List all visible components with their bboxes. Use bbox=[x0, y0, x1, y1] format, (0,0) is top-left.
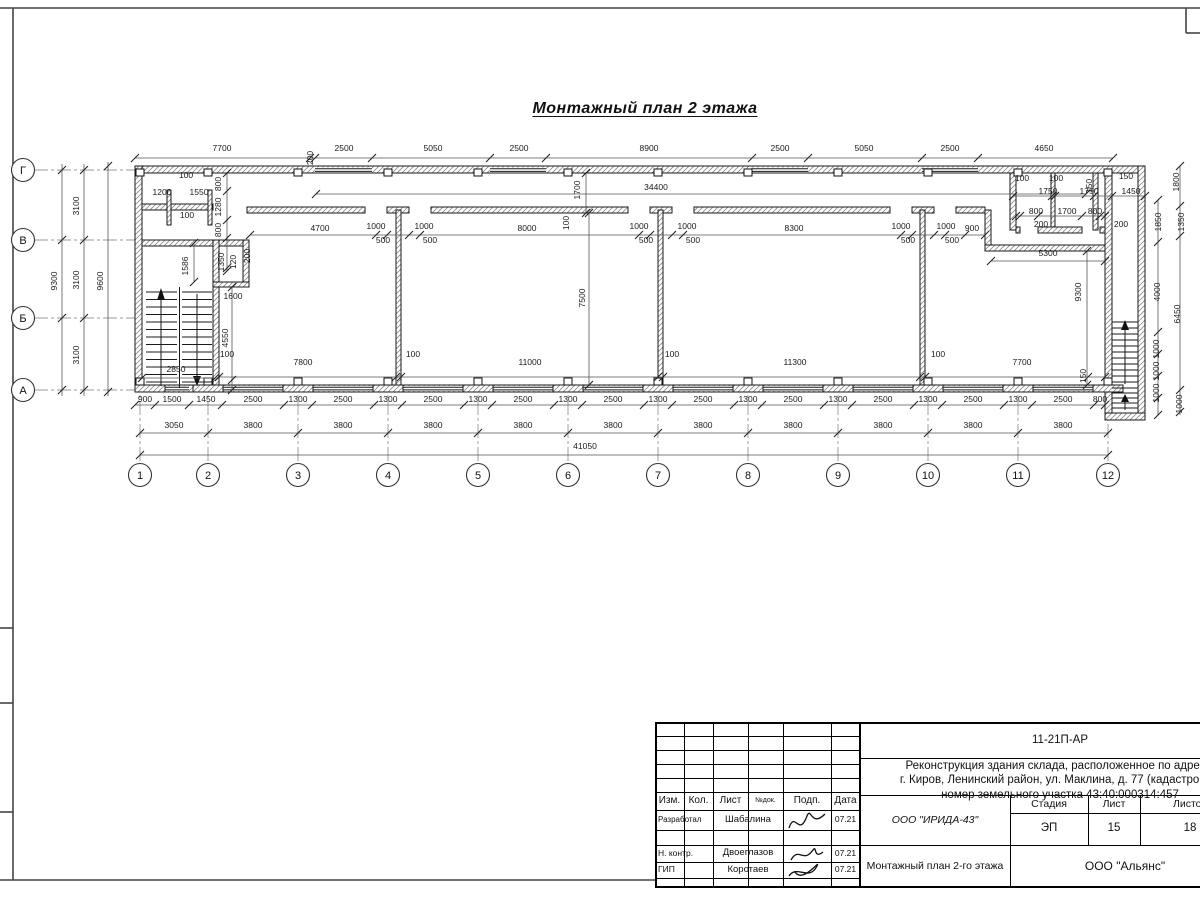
dim-label: 2500 bbox=[335, 143, 354, 153]
dim-label: 1550 bbox=[190, 187, 209, 197]
dim-label: 9600 bbox=[95, 271, 105, 290]
dim-label: 3800 bbox=[424, 420, 443, 430]
dim-label: 100 bbox=[665, 349, 679, 359]
col-data: Дата bbox=[831, 792, 860, 810]
dim-label: 1000 bbox=[415, 221, 434, 231]
role-developer: Разработал bbox=[656, 810, 715, 830]
col-axis-label: 1 bbox=[137, 470, 143, 482]
dim-label: 200 bbox=[242, 249, 252, 263]
dim-label: 4700 bbox=[311, 223, 330, 233]
dim-label: 3050 bbox=[165, 420, 184, 430]
dim-label: 1000 bbox=[937, 221, 956, 231]
dim-label: 2500 bbox=[771, 143, 790, 153]
col-axis-label: 8 bbox=[745, 470, 751, 482]
dim-label: 1000 bbox=[1151, 383, 1161, 402]
dim-label: 1300 bbox=[649, 394, 668, 404]
stage-value: ЭП bbox=[1010, 813, 1088, 845]
dim-label: 1000 bbox=[1174, 394, 1184, 413]
builder-org: ООО "Альянс" bbox=[1010, 845, 1200, 888]
role-ncontrol: Н. контр. bbox=[656, 845, 715, 862]
col-izm: Изм. bbox=[655, 792, 684, 810]
dim-label: 500 bbox=[639, 235, 653, 245]
dim-label: 1800 bbox=[1171, 172, 1181, 191]
sheet-label: Лист bbox=[1088, 795, 1140, 813]
dim-label: 1000 bbox=[892, 221, 911, 231]
dim-label: 3100 bbox=[71, 270, 81, 289]
dim-label: 200 bbox=[305, 151, 315, 165]
stage-label: Стадия bbox=[1010, 795, 1088, 813]
dim-label: 800 bbox=[213, 177, 223, 191]
dim-label: 2500 bbox=[784, 394, 803, 404]
dim-label: 150 bbox=[1078, 369, 1088, 383]
dim-label: 1300 bbox=[1009, 394, 1028, 404]
col-axis-label: 10 bbox=[922, 470, 934, 482]
dim-label: 3800 bbox=[694, 420, 713, 430]
dim-label: 3100 bbox=[71, 345, 81, 364]
dim-label: 500 bbox=[686, 235, 700, 245]
dim-label: 500 bbox=[423, 235, 437, 245]
dim-label: 8300 bbox=[785, 223, 804, 233]
col-list: Лист bbox=[713, 792, 748, 810]
col-axis-label: 12 bbox=[1102, 470, 1114, 482]
dim-label: 4550 bbox=[220, 328, 230, 347]
dim-label: 3800 bbox=[1054, 420, 1073, 430]
dim-label: 3100 bbox=[71, 196, 81, 215]
dim-label: 3800 bbox=[784, 420, 803, 430]
dim-label: 6450 bbox=[1172, 304, 1182, 323]
dim-label: 100 bbox=[561, 216, 571, 230]
designer-org: ООО "ИРИДА-43" bbox=[860, 795, 1010, 845]
dim-label: 2500 bbox=[334, 394, 353, 404]
dim-label: 1300 bbox=[739, 394, 758, 404]
dim-label: 1000 bbox=[367, 221, 386, 231]
dim-label: 100 bbox=[1015, 173, 1029, 183]
dim-label: 1000 bbox=[630, 221, 649, 231]
col-ndok: №док. bbox=[748, 792, 783, 810]
role-gip: ГИП bbox=[656, 862, 715, 878]
dim-label: 1586 bbox=[180, 256, 190, 275]
dim-label: 3800 bbox=[244, 420, 263, 430]
dim-label: 100 bbox=[931, 349, 945, 359]
row-axis-label: В bbox=[19, 235, 26, 247]
dim-label: 1700 bbox=[572, 180, 582, 199]
dim-label: 9300 bbox=[49, 271, 59, 290]
date-ncontrol: 07.21 bbox=[831, 845, 860, 862]
row-axis-label: Б bbox=[19, 313, 26, 325]
dim-label: 1450 bbox=[1122, 186, 1141, 196]
sheets-value: 18 bbox=[1140, 813, 1200, 845]
dim-label: 5300 bbox=[1039, 248, 1058, 258]
project-name-line1: Реконструкция здания склада, расположенн… bbox=[860, 758, 1200, 772]
dim-label: 1500 bbox=[163, 394, 182, 404]
dim-label: 800 bbox=[213, 223, 223, 237]
dim-label: 2500 bbox=[604, 394, 623, 404]
row-axis-label: А bbox=[19, 385, 27, 397]
dim-label: 2500 bbox=[964, 394, 983, 404]
plan-title: Монтажный план 2 этажа bbox=[455, 100, 835, 118]
dim-label: 3800 bbox=[604, 420, 623, 430]
dim-label: 3800 bbox=[334, 420, 353, 430]
dim-label: 2500 bbox=[1054, 394, 1073, 404]
dim-label: 2500 bbox=[424, 394, 443, 404]
dim-label: 4650 bbox=[1035, 143, 1054, 153]
dim-label: 1300 bbox=[559, 394, 578, 404]
project-name: Реконструкция здания склада, расположенн… bbox=[860, 758, 1200, 795]
dim-label: 100 bbox=[1049, 173, 1063, 183]
dim-label: 1000 bbox=[678, 221, 697, 231]
dim-label: 100 bbox=[179, 170, 193, 180]
col-axis-label: 4 bbox=[385, 470, 391, 482]
name-gip: Коротаев bbox=[713, 862, 783, 878]
dim-label: 800 bbox=[1029, 206, 1043, 216]
dim-label: 11000 bbox=[518, 357, 541, 367]
dim-label: 1300 bbox=[919, 394, 938, 404]
dim-label: 200 bbox=[1114, 219, 1128, 229]
dim-label: 1350 bbox=[1176, 212, 1186, 231]
dim-label: 1350 bbox=[216, 252, 226, 271]
dim-label: 150 bbox=[1119, 171, 1133, 181]
dim-label: 1300 bbox=[829, 394, 848, 404]
title-block: Изм. Кол. Лист №док. Подп. Дата Разработ… bbox=[655, 722, 1200, 888]
dim-label: 2500 bbox=[874, 394, 893, 404]
dim-label: 800 bbox=[1093, 394, 1107, 404]
dim-label: 3800 bbox=[964, 420, 983, 430]
dim-label: 100 bbox=[220, 349, 234, 359]
sheet-value: 15 bbox=[1088, 813, 1140, 845]
dim-label: 2850 bbox=[167, 364, 186, 374]
col-axis-label: 9 bbox=[835, 470, 841, 482]
drawing-name: Монтажный план 2-го этажа bbox=[860, 845, 1010, 888]
dim-label: 1000 bbox=[1151, 361, 1161, 380]
dim-label: 900 bbox=[965, 223, 979, 233]
name-ncontrol: Двоеглазов bbox=[713, 845, 783, 862]
date-developer: 07.21 bbox=[831, 810, 860, 830]
document-code: 11-21П-АР bbox=[860, 724, 1200, 758]
dim-label: 2500 bbox=[244, 394, 263, 404]
dim-label: 41050 bbox=[573, 441, 597, 451]
dim-label: 100 bbox=[180, 210, 194, 220]
dim-label: 200 bbox=[1034, 219, 1048, 229]
dim-label: 8000 bbox=[518, 223, 537, 233]
dim-label: 1200 bbox=[153, 187, 172, 197]
dim-label: 2500 bbox=[941, 143, 960, 153]
col-axis-label: 2 bbox=[205, 470, 211, 482]
dim-label: 500 bbox=[945, 235, 959, 245]
dim-label: 1300 bbox=[289, 394, 308, 404]
dim-label: 2500 bbox=[694, 394, 713, 404]
dim-label: 1750 bbox=[1080, 186, 1099, 196]
dim-label: 500 bbox=[901, 235, 915, 245]
dim-label: 1300 bbox=[469, 394, 488, 404]
dim-label: 900 bbox=[138, 394, 152, 404]
dim-label: 7700 bbox=[213, 143, 232, 153]
dim-label: 7700 bbox=[1013, 357, 1032, 367]
col-kol: Кол. bbox=[684, 792, 713, 810]
dim-label: 1280 bbox=[213, 197, 223, 216]
dim-label: 4000 bbox=[1152, 282, 1162, 301]
dim-label: 34400 bbox=[644, 182, 668, 192]
dim-label: 1700 bbox=[1058, 206, 1077, 216]
dim-label: 5050 bbox=[424, 143, 443, 153]
dim-label: 2500 bbox=[510, 143, 529, 153]
dim-label: 800 bbox=[1088, 206, 1102, 216]
name-developer: Шабалина bbox=[713, 810, 783, 830]
row-axis-label: Г bbox=[20, 165, 26, 177]
dim-label: 3800 bbox=[514, 420, 533, 430]
dim-label: 1300 bbox=[379, 394, 398, 404]
drawing-sheet: { "page": { "plan_title": "Монтажный пла… bbox=[0, 0, 1200, 900]
project-name-line2: г. Киров, Ленинский район, ул. Маклина, … bbox=[860, 772, 1200, 786]
sheets-label: Листов bbox=[1140, 795, 1200, 813]
dim-label: 120 bbox=[228, 255, 238, 269]
dim-label: 500 bbox=[376, 235, 390, 245]
dim-label: 11300 bbox=[783, 357, 806, 367]
dim-label: 1600 bbox=[224, 291, 243, 301]
col-axis-label: 11 bbox=[1012, 470, 1023, 482]
dim-label: 9300 bbox=[1073, 282, 1083, 301]
structural-columns bbox=[135, 169, 1123, 392]
dim-label: 3800 bbox=[874, 420, 893, 430]
dim-label: 7800 bbox=[294, 357, 313, 367]
col-axis-label: 7 bbox=[655, 470, 661, 482]
dim-label: 1750 bbox=[1039, 186, 1058, 196]
dim-label: 100 bbox=[406, 349, 420, 359]
col-axis-label: 5 bbox=[475, 470, 481, 482]
walls bbox=[135, 166, 1145, 420]
dim-label: 8900 bbox=[640, 143, 659, 153]
dim-label: 2500 bbox=[514, 394, 533, 404]
col-axis-label: 6 bbox=[565, 470, 571, 482]
col-axis-label: 3 bbox=[295, 470, 301, 482]
dim-label: 1000 bbox=[1151, 339, 1161, 358]
dim-label: 1850 bbox=[1153, 212, 1163, 231]
dim-label: 1450 bbox=[197, 394, 216, 404]
date-gip: 07.21 bbox=[831, 862, 860, 878]
signature-strokes bbox=[783, 808, 831, 886]
dim-label: 5050 bbox=[855, 143, 874, 153]
dim-label: 7500 bbox=[577, 288, 587, 307]
